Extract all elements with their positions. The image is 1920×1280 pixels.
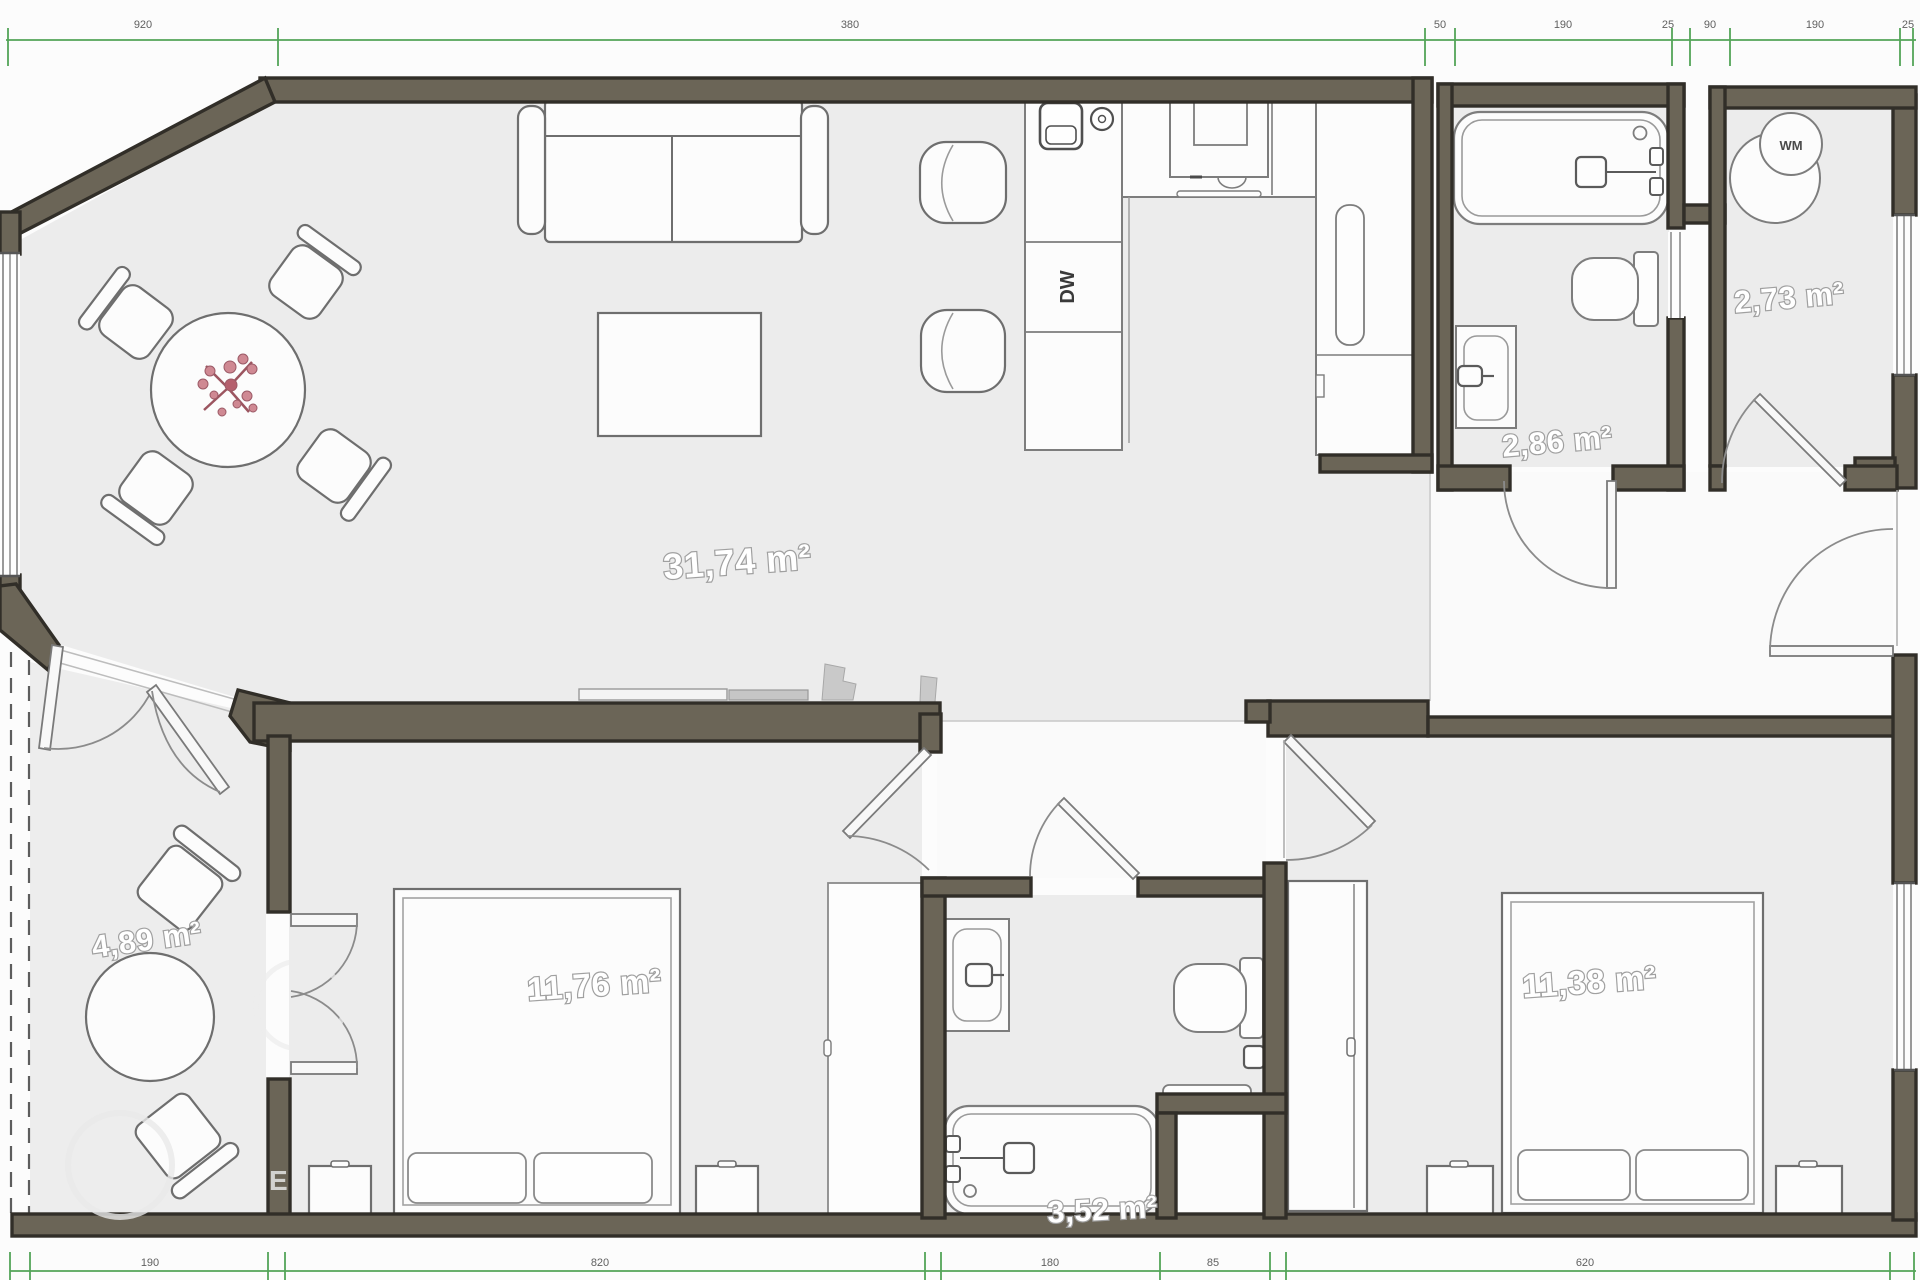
svg-text:DW: DW [1057, 270, 1079, 303]
svg-text:190: 190 [1806, 19, 1824, 31]
svg-text:920: 920 [134, 19, 152, 31]
svg-text:E: E [269, 1165, 288, 1196]
svg-text:25: 25 [1662, 19, 1674, 31]
svg-text:620: 620 [1576, 1257, 1594, 1269]
svg-text:190: 190 [1554, 19, 1572, 31]
svg-text:190: 190 [141, 1257, 159, 1269]
svg-text:90: 90 [1704, 19, 1716, 31]
svg-text:3,52 m²: 3,52 m² [1046, 1189, 1158, 1230]
svg-text:50: 50 [1434, 19, 1446, 31]
svg-text:WM: WM [1779, 138, 1802, 153]
svg-text:820: 820 [591, 1257, 609, 1269]
svg-text:380: 380 [841, 19, 859, 31]
svg-text:85: 85 [1207, 1257, 1219, 1269]
svg-text:180: 180 [1041, 1257, 1059, 1269]
svg-text:25: 25 [1902, 19, 1914, 31]
